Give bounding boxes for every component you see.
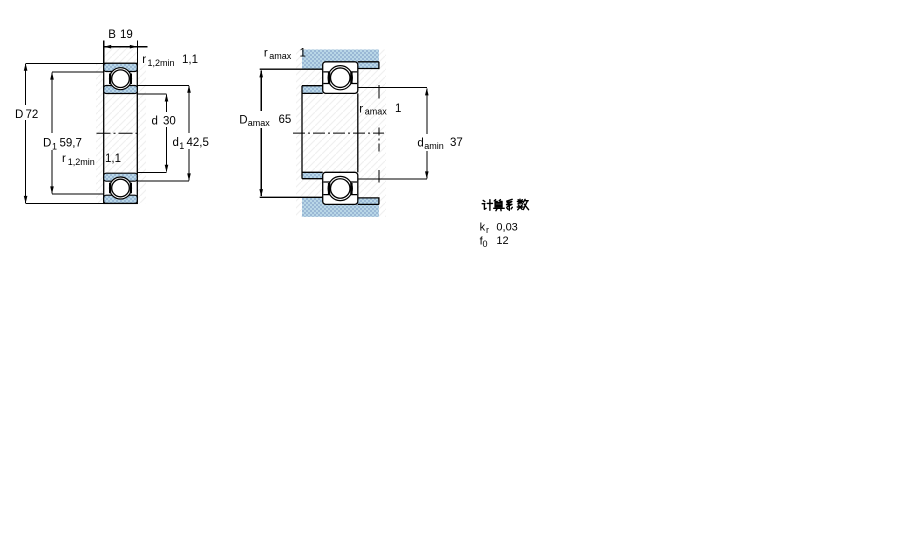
svg-text:D: D (15, 109, 23, 121)
svg-text:d: d (152, 116, 158, 128)
svg-text:amax: amax (248, 118, 271, 128)
svg-text:0: 0 (483, 239, 488, 249)
svg-text:r: r (142, 54, 146, 66)
svg-text:amin: amin (424, 141, 444, 151)
svg-text:D: D (43, 138, 51, 150)
svg-text:amax: amax (365, 107, 388, 117)
svg-text:0,03: 0,03 (496, 222, 517, 234)
svg-text:d: d (417, 138, 423, 150)
svg-text:r: r (486, 225, 489, 235)
svg-text:1,1: 1,1 (182, 54, 198, 66)
svg-text:k: k (480, 222, 486, 234)
svg-text:B: B (108, 29, 116, 41)
svg-text:r: r (264, 48, 268, 60)
svg-text:37: 37 (450, 137, 463, 149)
svg-text:amax: amax (269, 51, 292, 61)
svg-text:19: 19 (120, 29, 133, 41)
svg-text:65: 65 (279, 114, 292, 126)
svg-text:1: 1 (179, 141, 184, 151)
svg-text:1: 1 (52, 141, 57, 151)
svg-text:1: 1 (300, 48, 306, 60)
svg-text:1,2min: 1,2min (148, 58, 175, 68)
svg-text:59,7: 59,7 (60, 138, 82, 150)
svg-text:d: d (173, 137, 179, 149)
svg-text:12: 12 (496, 235, 508, 247)
svg-text:r: r (359, 104, 363, 116)
svg-text:42,5: 42,5 (187, 137, 209, 149)
svg-text:30: 30 (163, 116, 176, 128)
svg-text:D: D (239, 114, 247, 126)
svg-text:r: r (62, 153, 66, 165)
svg-text:72: 72 (26, 109, 39, 121)
svg-text:1,2min: 1,2min (68, 157, 95, 167)
svg-text:1,1: 1,1 (105, 153, 121, 165)
svg-text:1: 1 (395, 103, 401, 115)
